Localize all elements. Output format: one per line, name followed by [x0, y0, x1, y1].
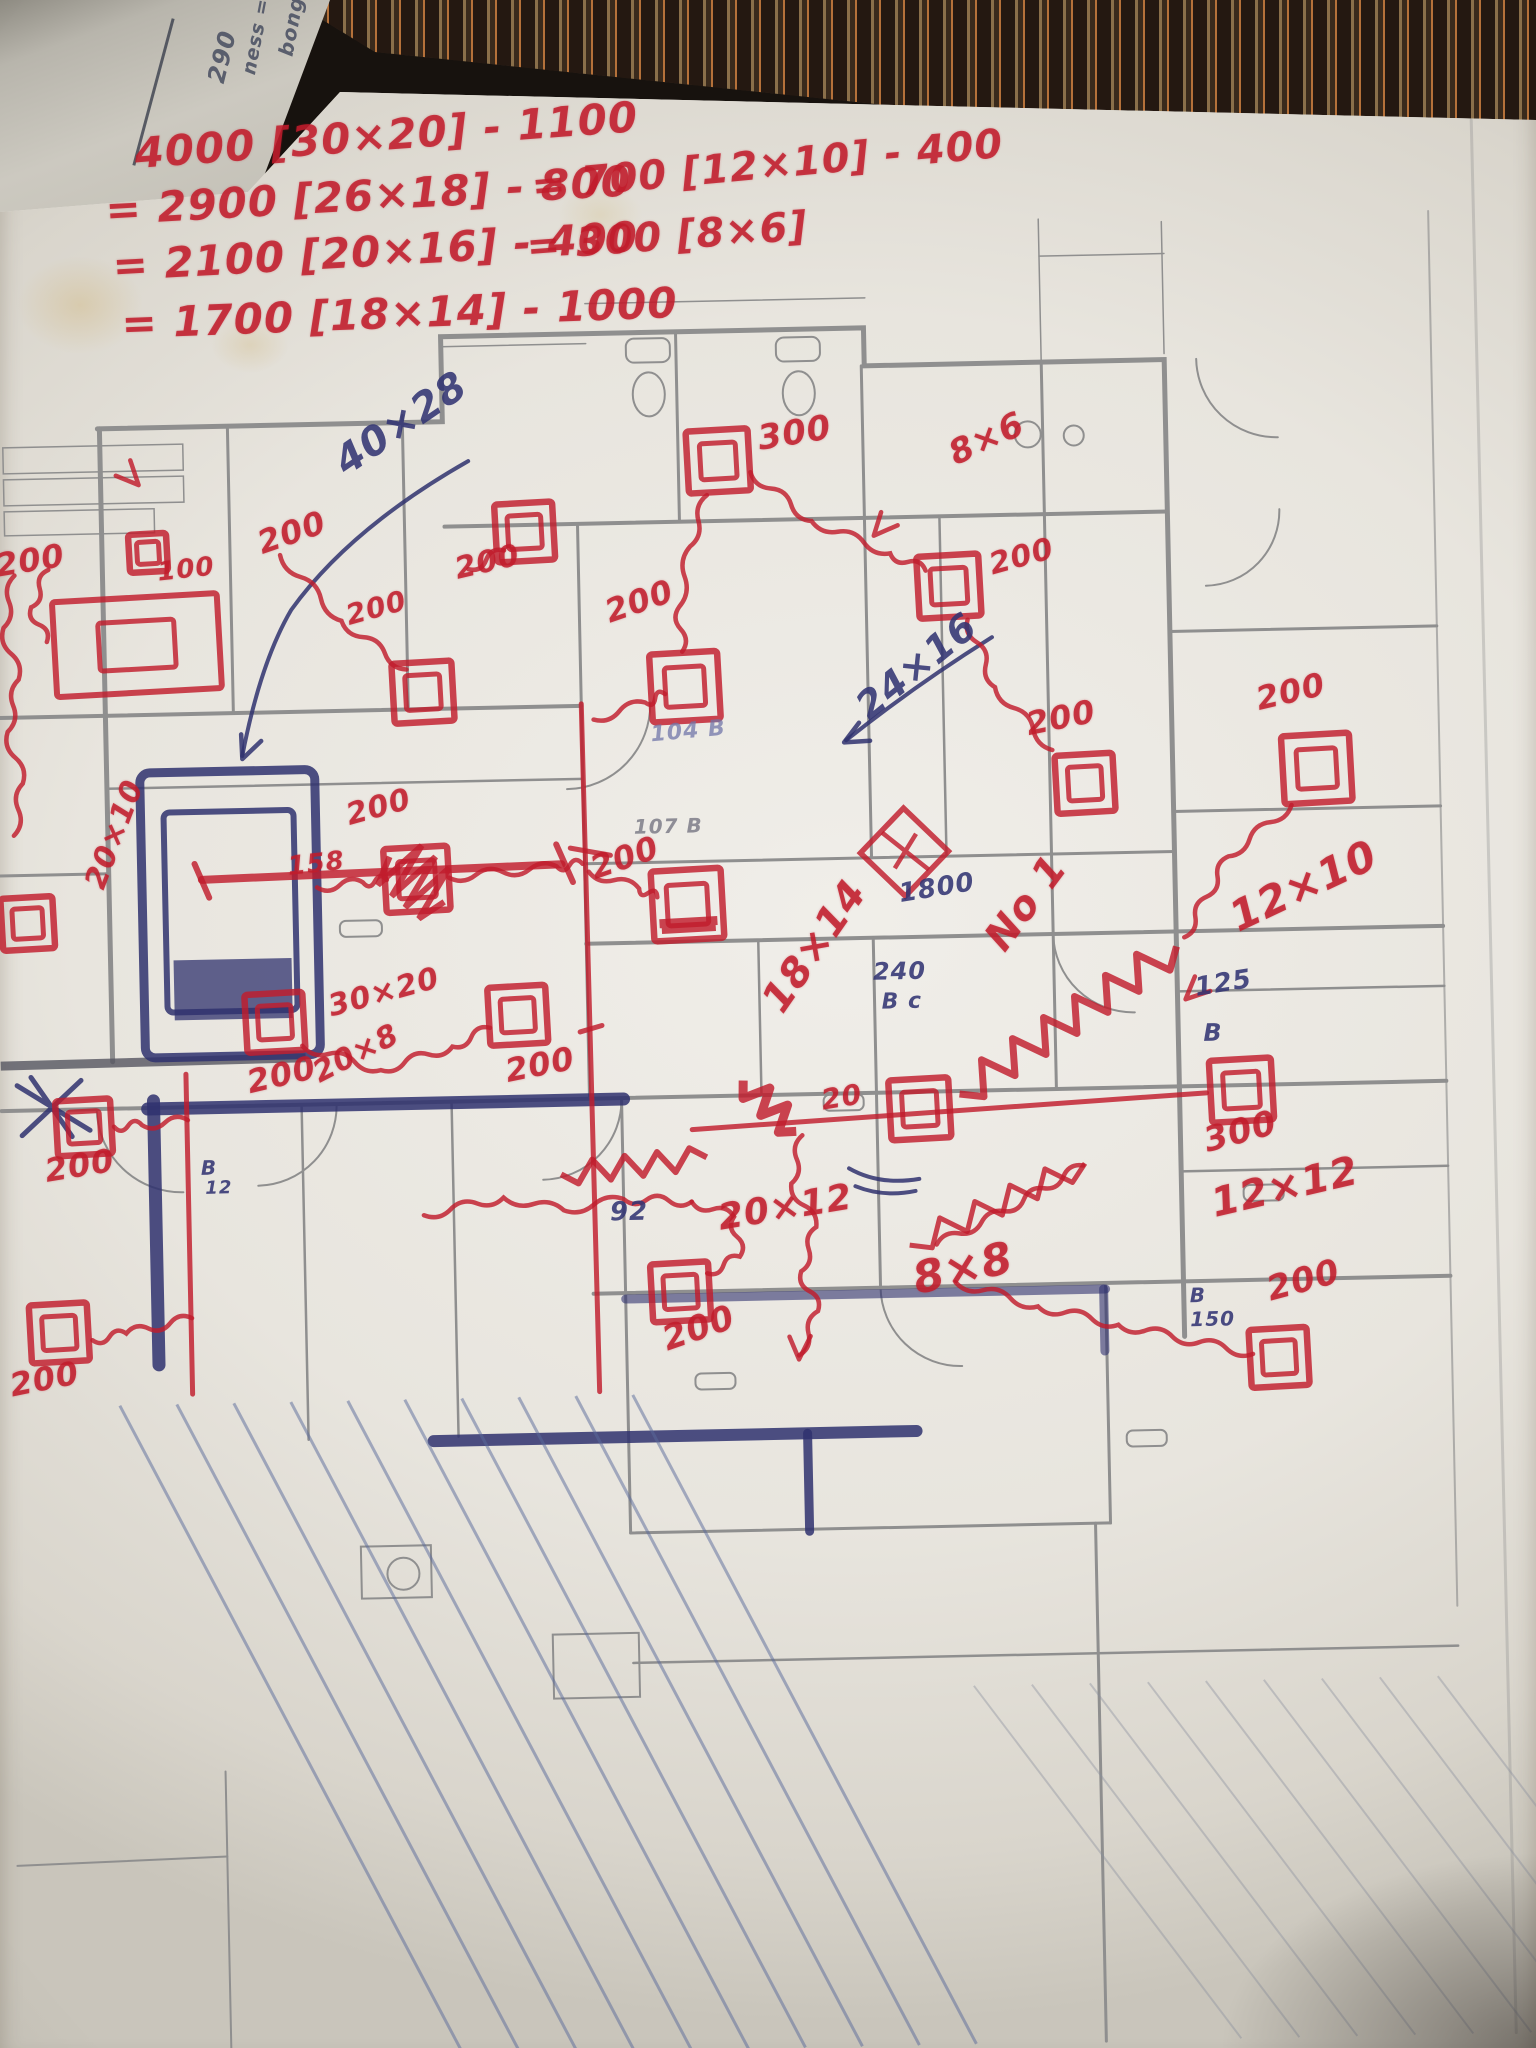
- marked-wall: [808, 1433, 810, 1531]
- duct-run-line: [186, 1074, 193, 1394]
- hatch-line: [1032, 1679, 1299, 2042]
- generated-ink: [0, 409, 1536, 2048]
- supply-diffuser-mark: [649, 651, 721, 723]
- hatch-line: [1322, 1673, 1536, 2036]
- photo-annotated-floor-plan: bong = 6ness =2904000 [30×20] - 1100= 29…: [0, 0, 1536, 2048]
- supply-diffuser-mark: [1281, 733, 1353, 805]
- supply-diffuser-mark: [916, 553, 981, 618]
- supply-diffuser-mark: [1249, 1327, 1310, 1388]
- supply-diffuser-mark: [1209, 1057, 1274, 1122]
- flex-duct-squiggle: [589, 870, 658, 898]
- flex-duct-squiggle: [302, 1027, 491, 1073]
- hatch-line: [120, 1399, 464, 2048]
- main-duct-scribble: [957, 946, 1180, 1097]
- hatch-line: [234, 1396, 578, 2048]
- printed-floor-plan: [0, 120, 1516, 2048]
- supply-diffuser-mark: [29, 1302, 90, 1363]
- supply-diffuser-mark: [1054, 753, 1115, 814]
- hatch-line: [1206, 1676, 1473, 2039]
- supply-diffuser-mark: [888, 1077, 951, 1140]
- supply-diffuser-mark: [376, 844, 452, 921]
- main-duct-scribble: [908, 1163, 1087, 1248]
- fd-damper-strikes: [882, 832, 929, 871]
- flex-duct-squiggle: [424, 1194, 692, 1218]
- hatch-line: [405, 1393, 749, 2048]
- supply-diffuser-mark: [651, 868, 725, 942]
- hatch-line: [1264, 1674, 1531, 2037]
- flex-duct-squiggle: [1182, 805, 1295, 937]
- duct-end-tick: [570, 847, 610, 856]
- plan-and-ink-layer: [0, 0, 1536, 2048]
- hatch-line: [348, 1394, 692, 2048]
- supply-diffuser-mark: [52, 593, 222, 697]
- duct-run-line: [581, 704, 599, 1392]
- supply-diffuser-mark: [128, 533, 168, 573]
- marked-wall: [148, 1099, 624, 1109]
- flex-duct-squiggle: [29, 570, 50, 642]
- ahu-fill: [174, 958, 293, 1020]
- hatch-line: [1148, 1677, 1415, 2040]
- hatch-line: [1090, 1678, 1357, 2041]
- flex-duct-squiggle: [280, 553, 406, 673]
- flex-duct-squiggle: [1, 576, 26, 836]
- marked-wall: [153, 1101, 159, 1365]
- supply-diffuser-mark: [494, 501, 555, 562]
- hatch-line: [291, 1395, 635, 2048]
- marked-wall: [434, 1431, 917, 1441]
- supply-diffuser-mark: [0, 896, 55, 951]
- main-duct-scribble: [561, 1148, 708, 1184]
- hatch-line: [974, 1680, 1241, 2043]
- duct-end-tick: [580, 1025, 602, 1031]
- marked-wall: [1104, 1289, 1105, 1351]
- blue-pen-layer: [4, 448, 1110, 1547]
- hatch-line: [462, 1392, 806, 2048]
- flex-duct-squiggle: [92, 1316, 193, 1344]
- flex-duct-squiggle: [967, 618, 1053, 752]
- hatch-line: [576, 1389, 920, 2048]
- arrowhead: [788, 1335, 811, 1360]
- flex-duct-squiggle: [790, 1135, 820, 1355]
- hatch-line: [1380, 1672, 1536, 2035]
- supply-diffuser-mark: [487, 985, 548, 1046]
- pen-scribble: [849, 1167, 920, 1194]
- supply-diffuser-mark: [686, 428, 751, 493]
